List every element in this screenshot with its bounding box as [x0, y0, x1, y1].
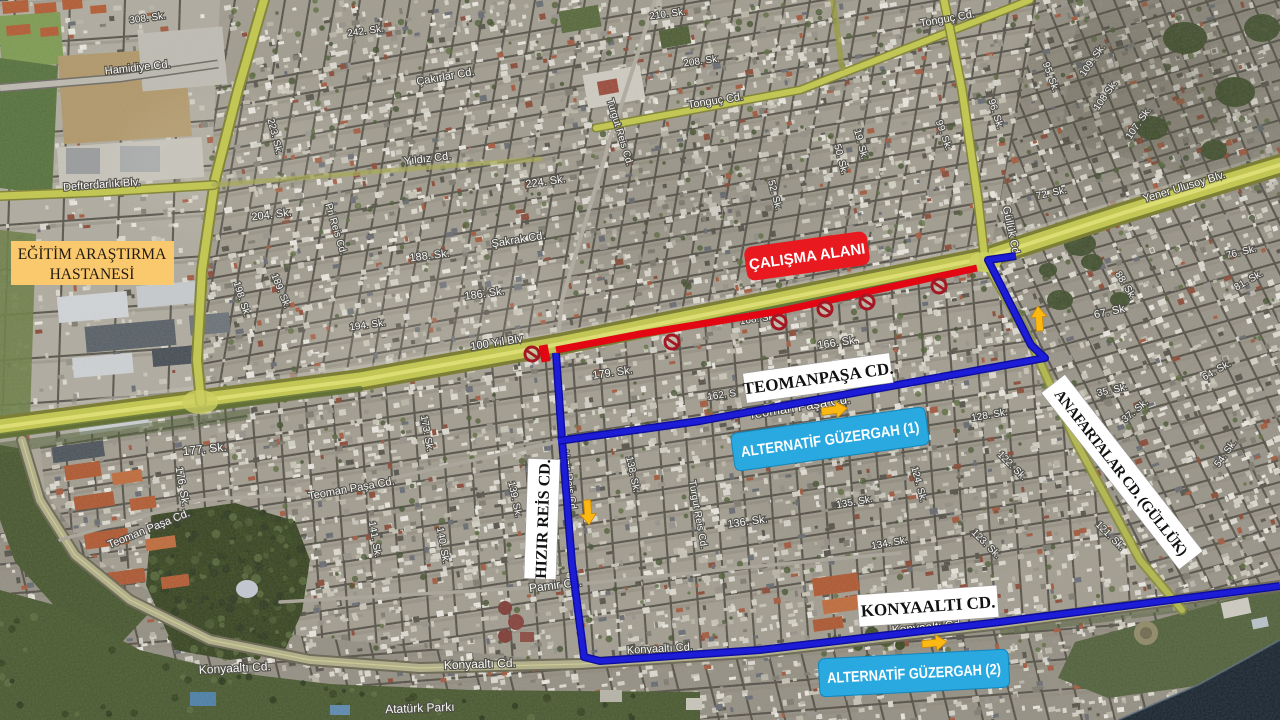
svg-text:HASTANESİ: HASTANESİ	[50, 266, 135, 283]
svg-text:EĞİTİM ARAŞTIRMA: EĞİTİM ARAŞTIRMA	[18, 246, 167, 263]
svg-text:Konyaaltı Cd.: Konyaaltı Cd.	[444, 656, 516, 673]
svg-text:Atatürk Parkı: Atatürk Parkı	[385, 700, 455, 716]
